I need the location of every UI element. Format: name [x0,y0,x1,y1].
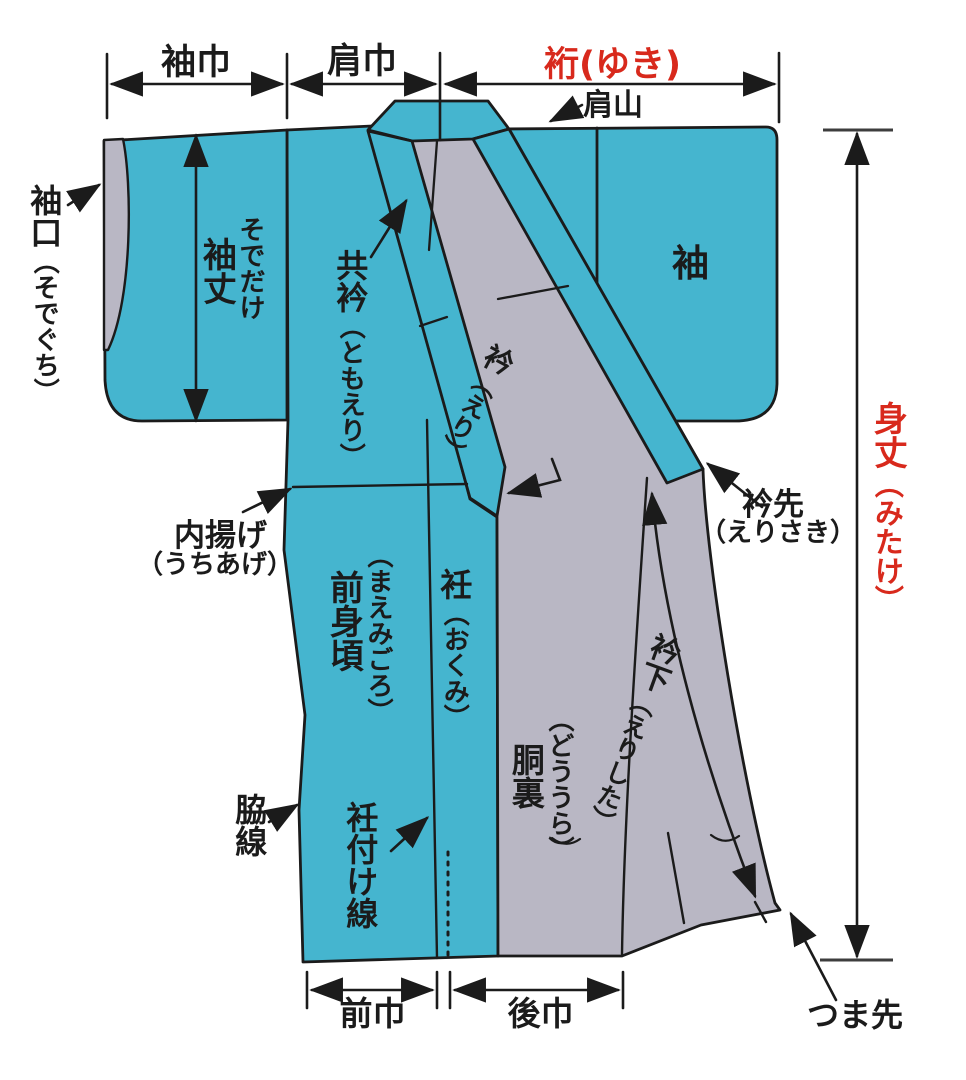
label-okumi-reading: （おくみ） [439,600,469,730]
label-mae-haba: 前巾 [320,997,425,1031]
sodeguchi-leader-arrow [68,185,99,205]
kimono-parts-diagram: 袖巾 肩巾 裄(ゆき) 肩山 袖口（そでぐち） そでだけ 袖丈 共衿（ともえり）… [0,0,966,1080]
label-maemigoro-main: 前身頃 [325,570,360,672]
label-sode-haba: 袖巾 [141,45,251,81]
label-kata-yama: 肩山 [583,90,643,121]
label-tsumasaki: つま先 [795,999,915,1032]
label-mitake-main: 身丈 [867,401,907,469]
label-sode: 袖 [672,245,709,283]
label-tomoeri: 共衿（ともえり） [333,249,366,469]
label-uchiage-main: 内揚げ [168,520,273,552]
label-wakisen: 脇線 [232,793,265,857]
label-douura-main: 胴裏 [508,743,542,809]
label-douura-reading: （どううら） [545,706,572,862]
label-sodetake-main: 袖丈 [198,237,233,305]
label-sodetake-reading: そでだけ [236,216,263,320]
label-kata-haba: 肩巾 [307,44,417,80]
label-yuki: 裄(ゆき) [530,47,695,83]
label-erisaki-main: 衿先 [723,489,823,521]
label-sodeguchi: 袖口（そでぐち） [27,184,60,404]
label-okumi: 衽（おくみ） [437,568,470,730]
label-tomoeri-reading: （ともえり） [335,313,365,469]
label-okumitsuke-sen: 衽付け線 [343,801,376,929]
label-erisaki-reading: （えりさき） [700,520,850,547]
label-maemigoro-reading: （まえみごろ） [364,542,391,724]
wakisen-leader-arrow [269,805,297,822]
tsumasaki-leader-arrow [791,914,836,1000]
kata-yama-leader-arrow [551,105,582,121]
label-ushiro-haba: 後巾 [488,997,593,1031]
label-okumi-main: 衽 [435,568,473,600]
label-tomoeri-main: 共衿 [331,249,369,313]
label-uchiage-reading: （うちあげ） [135,552,295,579]
uchiage-leader-arrow [243,489,290,512]
label-sodeguchi-main: 袖口 [25,184,63,248]
label-mitake-reading: （みたけ） [870,469,904,614]
label-mitake: 身丈（みたけ） [869,401,904,614]
label-sodeguchi-reading: （そでぐち） [29,248,59,404]
